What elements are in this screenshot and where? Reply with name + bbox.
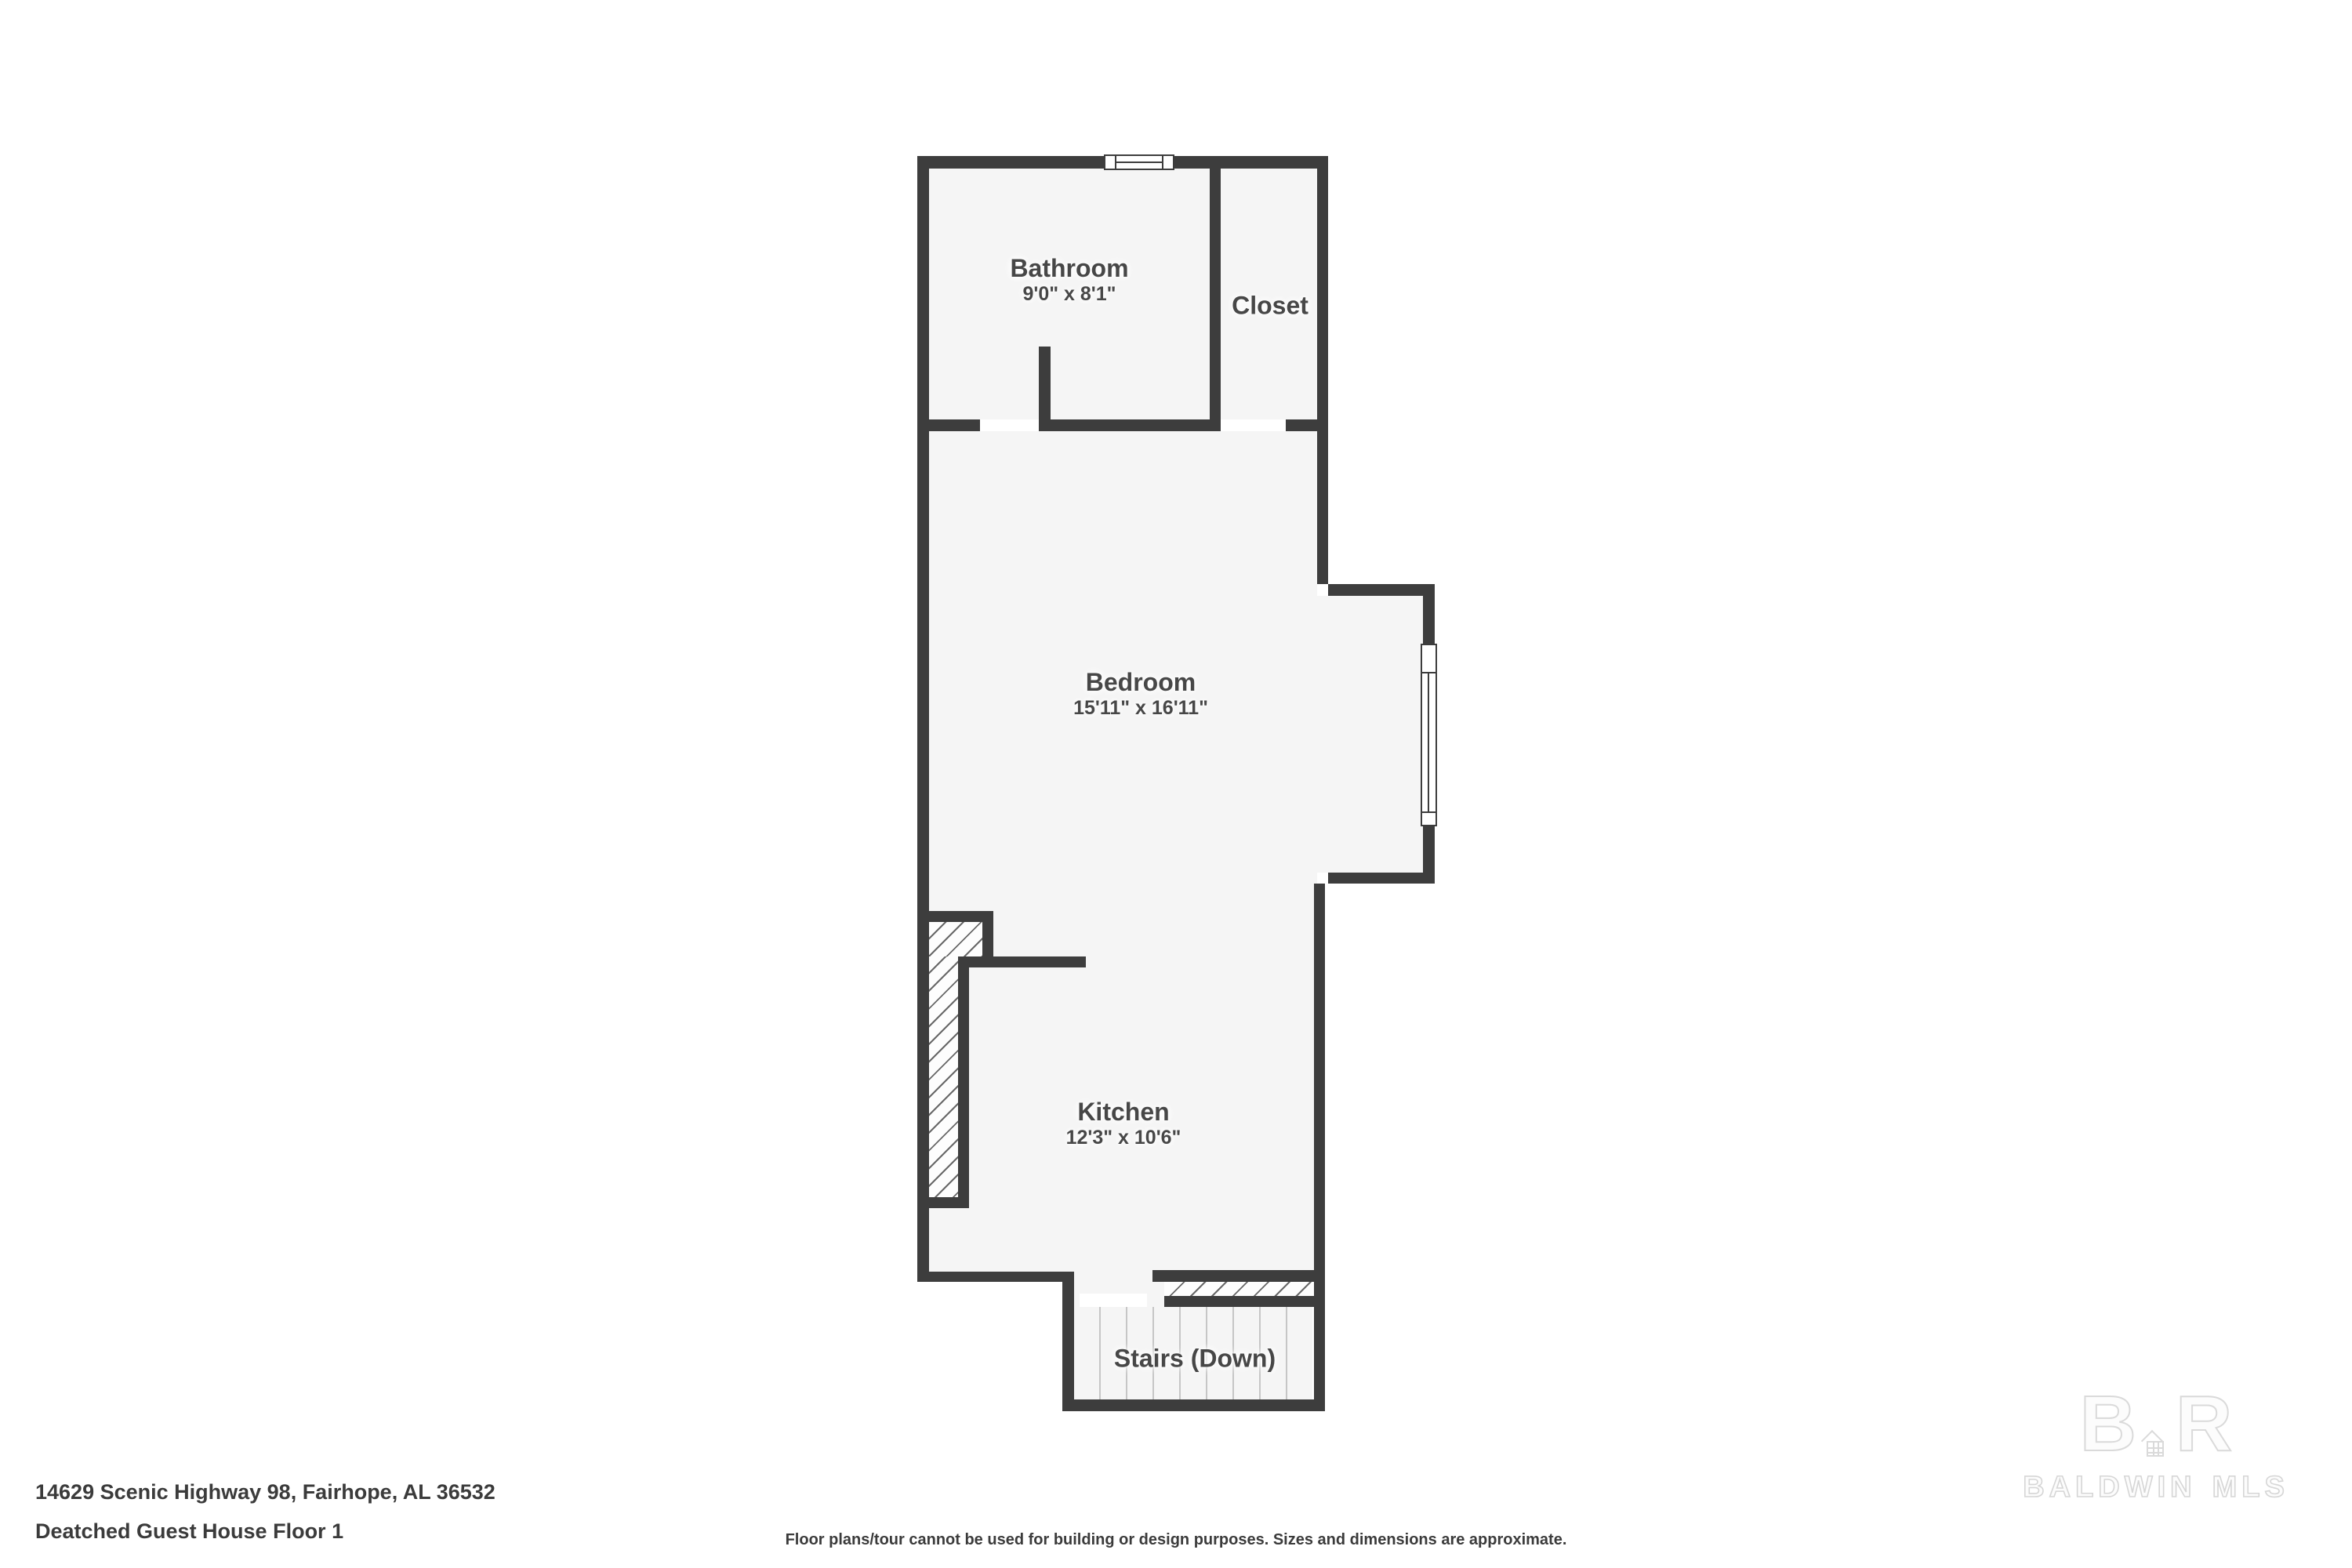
wall-kitchen-hatch-right-upper [982, 922, 993, 956]
wall-bump-top [1328, 584, 1435, 596]
kitchen-railing-hatch-narrow [929, 956, 958, 1197]
wall-stairs-left [1062, 1272, 1074, 1411]
wall-right-upper [1317, 156, 1328, 584]
wall-right-lower [1314, 884, 1325, 1411]
bedroom-dimensions: 15'11" x 16'11" [1073, 697, 1208, 720]
wall-bathroom-closet-divider [1210, 169, 1221, 419]
baldwin-mls-wordmark: BALDWIN MLS [2038, 1471, 2274, 1504]
wall-left [917, 156, 929, 1282]
bathroom-name: Bathroom [1010, 254, 1128, 283]
kitchen-dimensions: 12'3" x 10'6" [1066, 1127, 1181, 1149]
wall-kitchen-stub [958, 956, 1086, 967]
kitchen-name: Kitchen [1066, 1098, 1181, 1127]
monogram-letter-b: B [2080, 1388, 2136, 1460]
baldwin-mls-watermark: B R BALDWIN MLS [2038, 1388, 2274, 1504]
monogram-letter-r: R [2176, 1388, 2232, 1460]
floor-plan-page: Bathroom 9'0" x 8'1" Closet Bedroom 15'1… [0, 0, 2352, 1568]
wall-bathroom-stub [1039, 347, 1051, 419]
closet-name: Closet [1232, 292, 1308, 321]
closet-label: Closet [1232, 292, 1308, 321]
bathroom-door-opening [980, 419, 1039, 431]
bathroom-window [1104, 154, 1174, 170]
stairs-label: Stairs (Down) [1114, 1345, 1276, 1374]
bedroom-name: Bedroom [1073, 668, 1208, 697]
window-mullion [1116, 162, 1163, 163]
house-body-icon [2147, 1441, 2164, 1457]
brand-mls: MLS [2212, 1471, 2289, 1504]
bathroom-label: Bathroom 9'0" x 8'1" [1010, 254, 1128, 306]
kitchen-label: Kitchen 12'3" x 10'6" [1066, 1098, 1181, 1149]
wall-kitchen-hatch-top [929, 911, 993, 922]
stairs-name: Stairs (Down) [1114, 1345, 1276, 1374]
wall-bump-bottom [1328, 873, 1435, 884]
kitchen-railing-hatch-wide [929, 922, 982, 956]
bedroom-label: Bedroom 15'11" x 16'11" [1073, 668, 1208, 720]
house-icon [2144, 1435, 2168, 1458]
disclaimer-text: Floor plans/tour cannot be used for buil… [0, 1531, 2352, 1549]
wall-stairs-bottom [1062, 1399, 1325, 1411]
wall-stairs-rail-bottom [1164, 1296, 1314, 1307]
brand-baldwin: BALDWIN [2023, 1471, 2196, 1504]
wall-kitchen-hatch-right-lower [958, 967, 969, 1197]
bedroom-bump-out-floor [1317, 596, 1423, 873]
bathroom-dimensions: 9'0" x 8'1" [1010, 283, 1128, 306]
wall-kitchen-hatch-bottom [929, 1197, 969, 1208]
closet-door-opening [1221, 419, 1286, 431]
bedroom-window [1421, 644, 1437, 826]
stairs-railing-hatch [1164, 1282, 1312, 1296]
wall-stairs-rail-top [1152, 1270, 1325, 1282]
stairs-door-opening [1080, 1294, 1147, 1307]
address-line-1: 14629 Scenic Highway 98, Fairhope, AL 36… [35, 1480, 495, 1504]
baldwin-mls-monogram: B R [2038, 1388, 2274, 1460]
window-mullion [1428, 673, 1429, 813]
stairs-passage-floor [1074, 1272, 1152, 1282]
wall-kitchen-bottom [917, 1272, 1074, 1282]
